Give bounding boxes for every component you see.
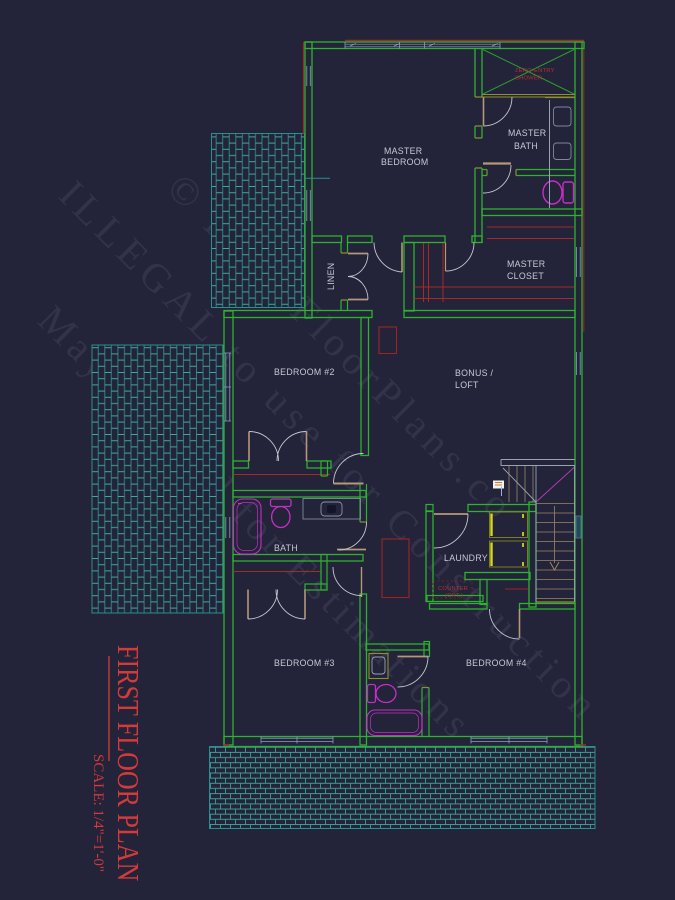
svg-text:LOFT: LOFT: [455, 380, 479, 390]
svg-text:BEDROOM: BEDROOM: [381, 157, 429, 167]
svg-text:MASTER: MASTER: [508, 128, 546, 138]
svg-text:MASTER: MASTER: [507, 259, 545, 269]
svg-text:LINEN: LINEN: [326, 263, 336, 290]
svg-text:BATH: BATH: [274, 543, 298, 553]
svg-text:BEDROOM #4: BEDROOM #4: [466, 658, 527, 668]
svg-text:SCALE: 1/4"=1'-0": SCALE: 1/4"=1'-0": [90, 754, 106, 872]
svg-text:FIRST FLOOR PLAN: FIRST FLOOR PLAN: [110, 645, 143, 881]
svg-text:BEDROOM #2: BEDROOM #2: [274, 367, 335, 377]
svg-text:BONUS /: BONUS /: [455, 368, 494, 378]
svg-text:ZERO-ENTRY: ZERO-ENTRY: [515, 68, 555, 74]
svg-text:LAUNDRY: LAUNDRY: [444, 553, 488, 563]
svg-text:(OPT.): (OPT.): [445, 593, 463, 599]
svg-text:COUNTER: COUNTER: [438, 586, 468, 592]
svg-text:BATH: BATH: [514, 141, 538, 151]
svg-text:BEDROOM #3: BEDROOM #3: [274, 658, 335, 668]
svg-text:SHOWER: SHOWER: [515, 76, 542, 82]
svg-text:CLOSET: CLOSET: [507, 271, 544, 281]
svg-text:MASTER: MASTER: [384, 146, 422, 156]
